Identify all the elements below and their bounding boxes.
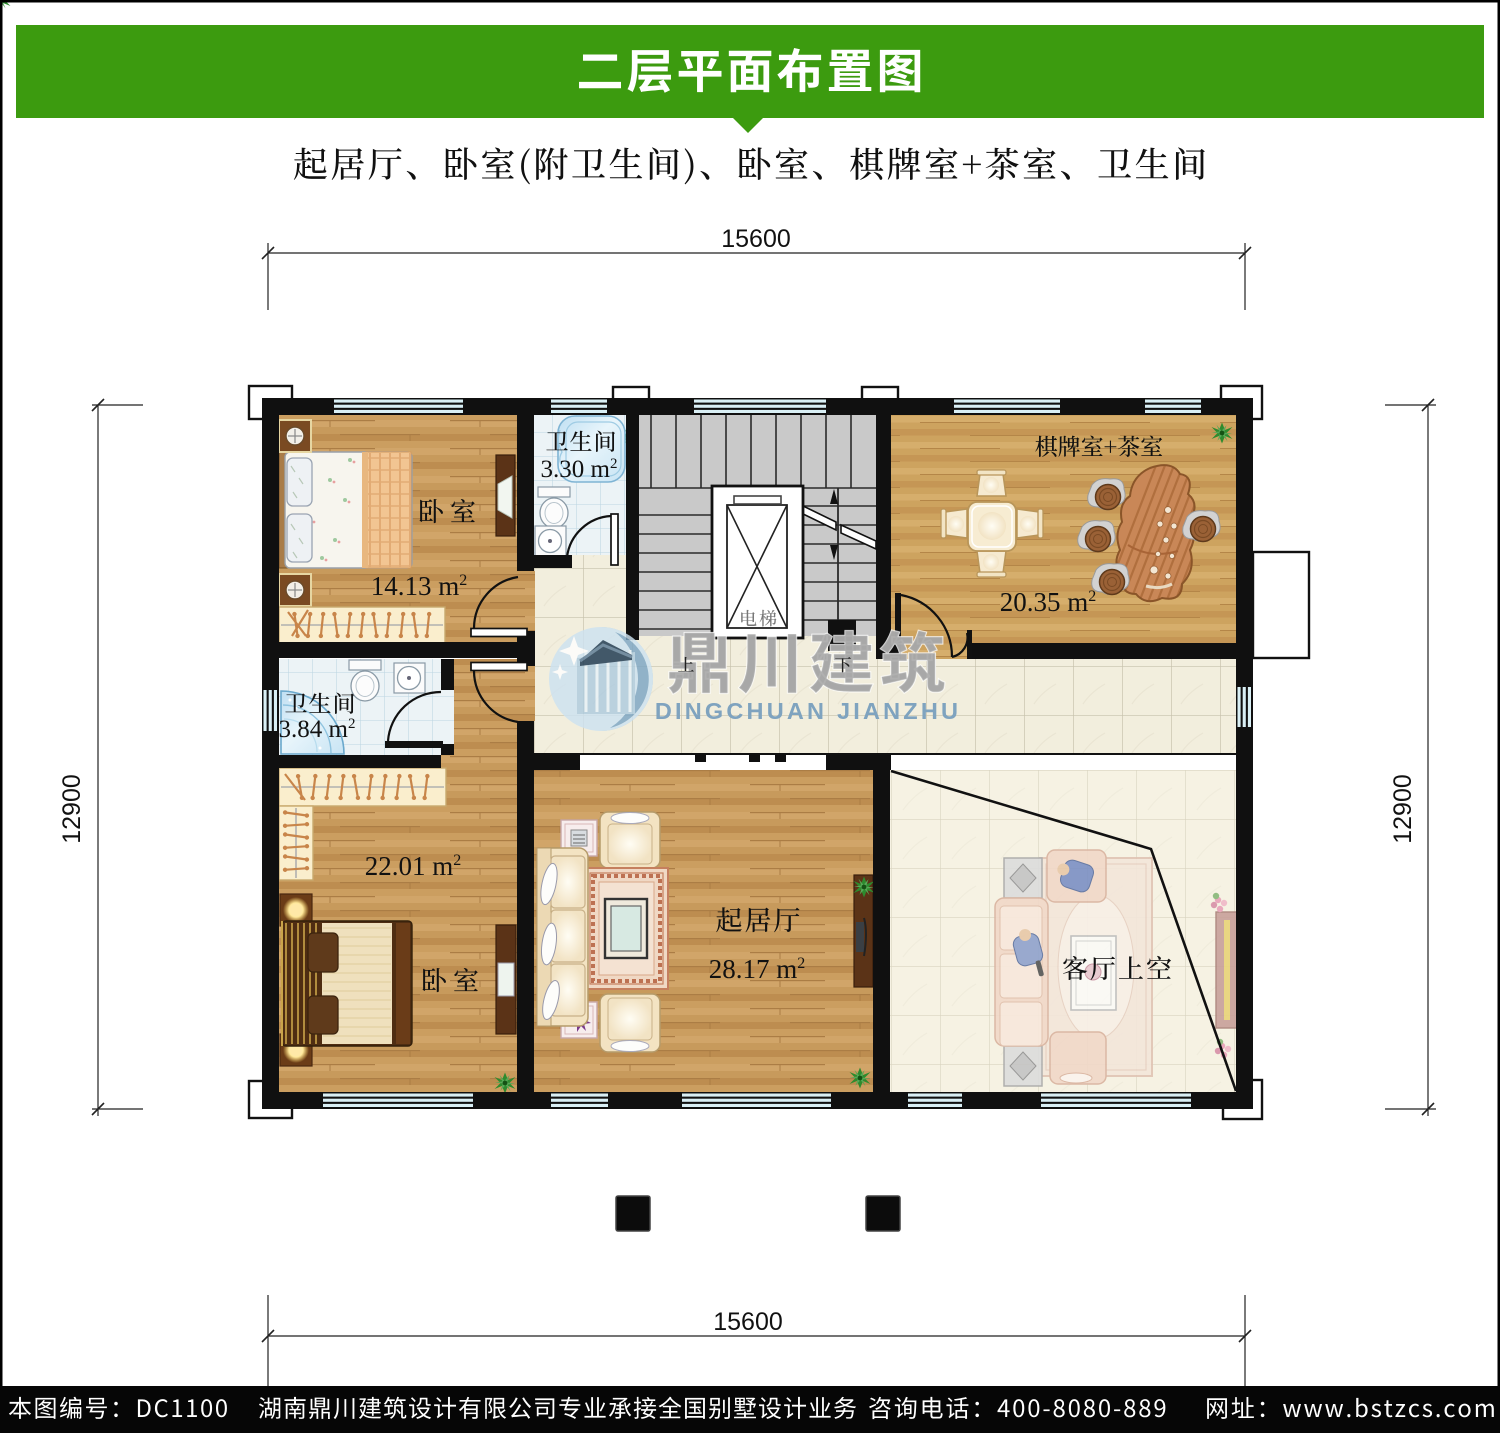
svg-text:3.84 m2: 3.84 m2 xyxy=(279,716,356,743)
svg-text:DINGCHUAN JIANZHU: DINGCHUAN JIANZHU xyxy=(655,698,961,724)
svg-text:12900: 12900 xyxy=(58,774,86,844)
svg-text:15600: 15600 xyxy=(713,1308,783,1336)
svg-text:14.13 m2: 14.13 m2 xyxy=(371,571,468,601)
svg-text:28.17 m2: 28.17 m2 xyxy=(709,954,806,984)
svg-text:12900: 12900 xyxy=(1389,774,1417,844)
svg-text:22.01 m2: 22.01 m2 xyxy=(365,851,462,881)
svg-text:3.30 m2: 3.30 m2 xyxy=(541,456,618,483)
svg-text:15600: 15600 xyxy=(721,225,791,253)
svg-text:20.35 m2: 20.35 m2 xyxy=(1000,587,1097,617)
